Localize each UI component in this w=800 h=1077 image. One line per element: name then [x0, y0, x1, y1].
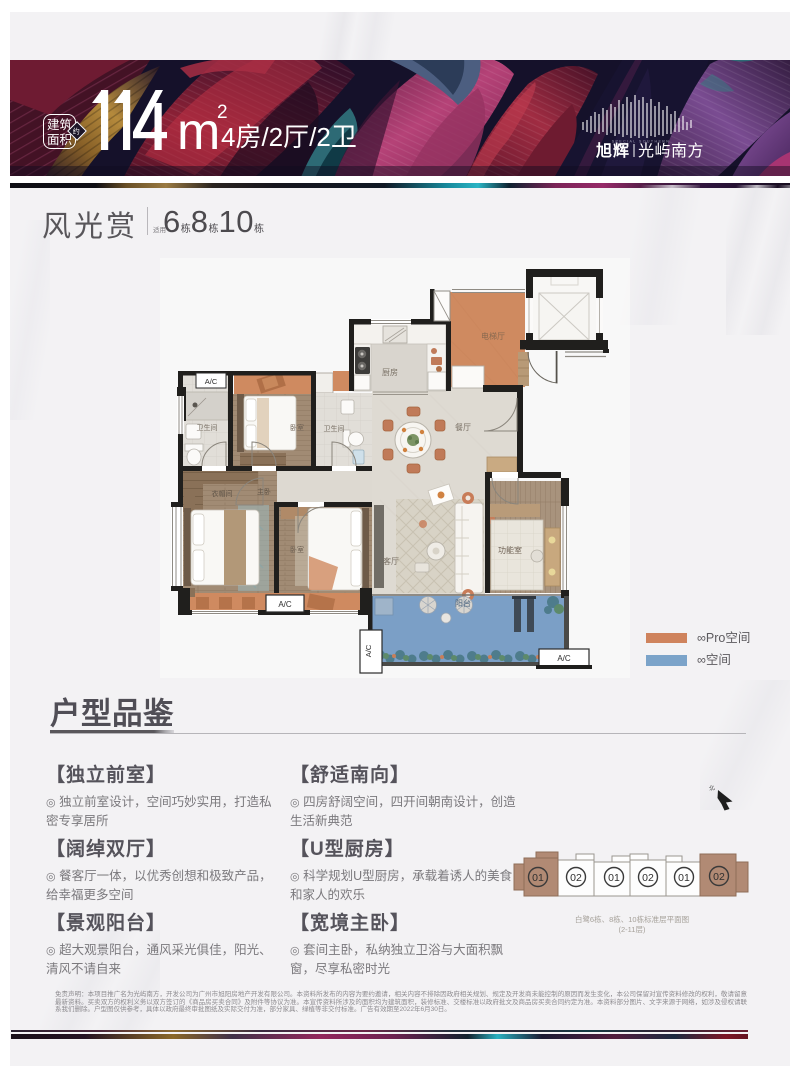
svg-text:01: 01 — [678, 872, 690, 884]
svg-text:卫生间: 卫生间 — [324, 424, 345, 433]
svg-text:主卧: 主卧 — [257, 487, 271, 496]
svg-text:阳台: 阳台 — [455, 598, 471, 608]
svg-text:衣帽间: 衣帽间 — [212, 489, 233, 498]
svg-text:A/C: A/C — [278, 600, 292, 609]
svg-text:客厅: 客厅 — [383, 556, 399, 566]
svg-text:电梯厅: 电梯厅 — [481, 331, 505, 341]
svg-text:01: 01 — [608, 872, 620, 884]
svg-text:功能室: 功能室 — [498, 545, 522, 555]
svg-text:卧室: 卧室 — [290, 423, 304, 432]
svg-text:A/C: A/C — [364, 644, 373, 657]
svg-text:餐厅: 餐厅 — [455, 423, 471, 432]
svg-text:(2-11层): (2-11层) — [619, 925, 646, 934]
svg-text:白鹭6栋、8栋、10栋标准层平面图: 白鹭6栋、8栋、10栋标准层平面图 — [575, 914, 689, 924]
svg-text:∞Pro空间: ∞Pro空间 — [697, 631, 750, 645]
svg-text:A/C: A/C — [205, 377, 218, 386]
svg-text:02: 02 — [570, 872, 582, 884]
svg-text:A/C: A/C — [557, 654, 571, 663]
svg-text:厨房: 厨房 — [382, 367, 398, 377]
svg-text:卧室: 卧室 — [290, 545, 304, 554]
svg-text:卫生间: 卫生间 — [197, 423, 218, 432]
svg-text:∞空间: ∞空间 — [697, 653, 731, 667]
svg-text:02: 02 — [642, 872, 654, 884]
svg-text:北: 北 — [708, 784, 716, 793]
svg-text:02: 02 — [713, 871, 725, 883]
